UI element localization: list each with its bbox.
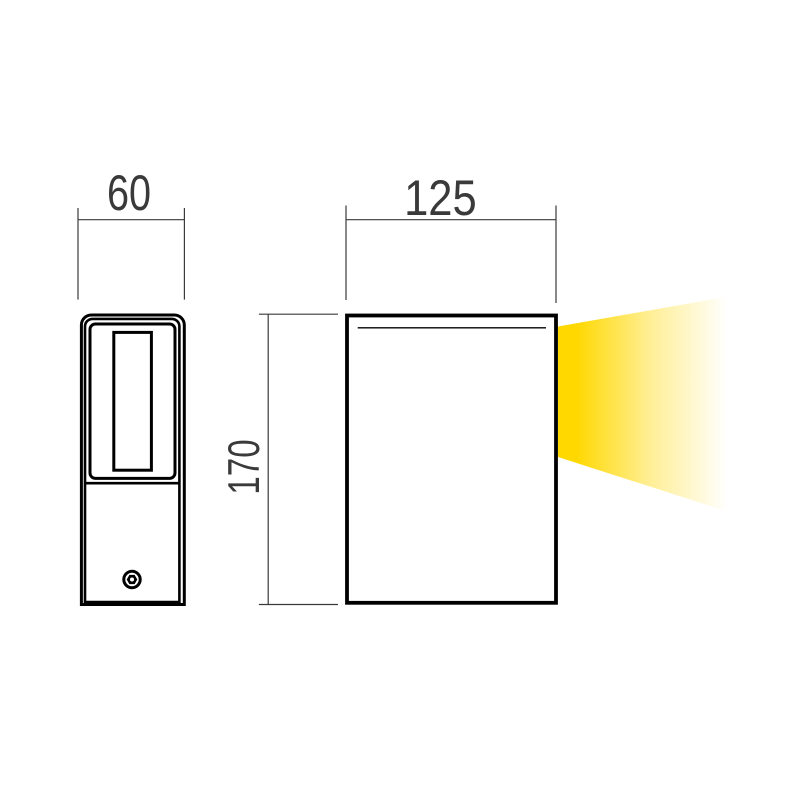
svg-text:60: 60 — [107, 164, 151, 221]
svg-text:170: 170 — [221, 439, 270, 494]
svg-text:125: 125 — [404, 169, 477, 226]
